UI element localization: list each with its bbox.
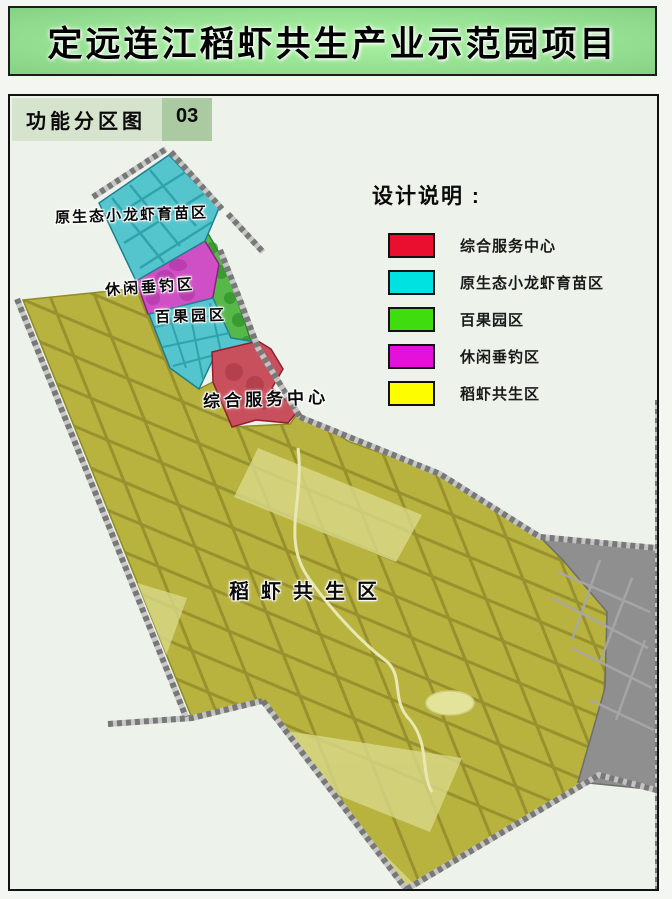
legend-item: 百果园区 <box>368 306 604 332</box>
legend-item-label: 休闲垂钓区 <box>460 346 540 367</box>
map-number-badge: 03 <box>162 98 212 141</box>
project-title-banner: 定远连江稻虾共生产业示范园项目 <box>8 6 657 76</box>
legend-item-label: 综合服务中心 <box>460 235 556 256</box>
zone-label-orchard: 百果园区 <box>155 304 228 328</box>
zone-label-service-center: 综合服务中心 <box>203 383 330 412</box>
map-type-label: 功能分区图 <box>12 98 162 141</box>
legend-color-swatch <box>388 344 435 369</box>
legend-item: 休闲垂钓区 <box>368 343 604 369</box>
legend-item-label: 百果园区 <box>460 309 524 330</box>
map-frame: 功能分区图 03 设计说明 : 综合服务中心 原生态小龙虾育苗区 百果园区 休闲… <box>8 94 659 891</box>
page-title: 定远连江稻虾共生产业示范园项目 <box>47 16 617 67</box>
legend-item-label: 原生态小龙虾育苗区 <box>460 272 604 293</box>
legend-color-swatch <box>388 381 435 406</box>
map-tag: 功能分区图 03 <box>12 98 212 141</box>
legend-item: 综合服务中心 <box>368 232 604 258</box>
legend-color-swatch <box>388 270 435 295</box>
legend-item: 稻虾共生区 <box>368 380 604 406</box>
legend: 设计说明 : 综合服务中心 原生态小龙虾育苗区 百果园区 休闲垂钓区 稻虾共生区 <box>368 180 604 417</box>
legend-item: 原生态小龙虾育苗区 <box>368 269 604 295</box>
legend-title: 设计说明 : <box>372 180 604 210</box>
legend-color-swatch <box>388 307 435 332</box>
legend-item-label: 稻虾共生区 <box>460 383 540 404</box>
legend-color-swatch <box>388 233 435 258</box>
zone-label-rice-shrimp: 稻虾共生区 <box>229 575 389 604</box>
